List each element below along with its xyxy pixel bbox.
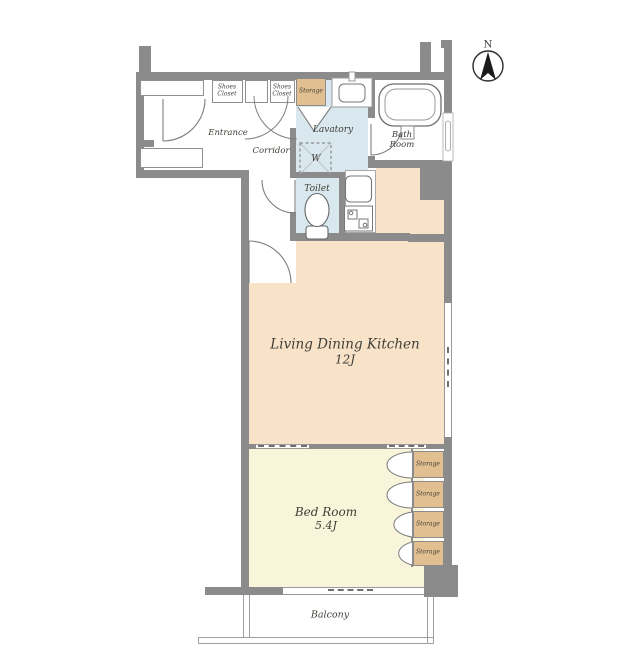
balcony-line-bottom-a xyxy=(198,637,434,638)
divider-opening-right-sash xyxy=(389,445,424,447)
corridor-label: Corridor xyxy=(252,147,289,157)
wall-bedroom-bottom xyxy=(205,587,283,595)
bedroom-size: 5.4J xyxy=(295,520,357,533)
ldk-size: 12J xyxy=(270,353,419,367)
balcony-line-right-b xyxy=(433,597,434,644)
wall-bath-divider-top xyxy=(368,80,375,118)
wall-bottomright-block xyxy=(424,565,458,597)
ldk-label: Living Dining Kitchen 12J xyxy=(270,337,419,366)
bedroom-south-window-sash xyxy=(328,589,373,591)
wall-top xyxy=(136,72,452,80)
wall-alcove-mid-stub xyxy=(136,140,154,147)
wall-alcove-bottom xyxy=(136,170,248,178)
balcony-line-left-b xyxy=(249,595,250,638)
shoes-closet-mid-box xyxy=(245,80,268,103)
bedroom-storage-label-3: Storage xyxy=(416,522,440,529)
wall-right-upper xyxy=(444,46,452,303)
shoes-closet-left-line2: Closet xyxy=(217,91,236,98)
compass-north-label: N xyxy=(484,39,493,51)
bedroom-name: Bed Room xyxy=(295,506,357,520)
pipe-shaft-block xyxy=(420,168,444,200)
washer-label: W xyxy=(311,154,320,164)
kitchen-counter xyxy=(345,170,376,233)
entry-storage-label: Storage xyxy=(299,89,323,96)
wall-west-main xyxy=(241,170,249,595)
wall-kitchen-bottom xyxy=(290,233,410,241)
divider-opening-left-sash xyxy=(258,445,307,447)
entrance-door-arc xyxy=(163,99,205,141)
shoes-closet-right-line2: Closet xyxy=(272,91,291,98)
bedroom-storage-label-4: Storage xyxy=(416,550,440,557)
wall-kitchen-stub xyxy=(408,234,452,242)
wall-bath-bottom xyxy=(368,160,452,168)
balcony-line-cap xyxy=(198,637,199,644)
floor-plan: N Entrance Corridor Lavatory Toilet Bath… xyxy=(0,0,618,662)
shoes-closet-left-label: Shoes Closet xyxy=(217,84,236,97)
bathroom-label: Bath Room xyxy=(390,131,415,151)
balcony-label: Balcony xyxy=(311,611,349,622)
toilet-door-arc xyxy=(262,180,295,213)
ldk-east-window-sash xyxy=(447,347,449,387)
shoes-closet-right-label: Shoes Closet xyxy=(272,84,291,97)
ldk-name: Living Dining Kitchen xyxy=(270,337,419,353)
entrance-label: Entrance xyxy=(208,129,248,139)
balcony-line-bottom-b xyxy=(198,643,434,644)
toilet-label: Toilet xyxy=(304,184,329,194)
bedroom-storage-label-2: Storage xyxy=(416,492,440,499)
compass-icon xyxy=(473,51,503,81)
lavatory-label: Lavatory xyxy=(313,125,353,135)
balcony-line-left-a xyxy=(243,595,244,638)
balcony-line-right-a xyxy=(427,597,428,644)
alcove-closet-upper xyxy=(140,80,204,96)
wall-right-lower xyxy=(444,437,452,565)
wall-lavatory-left xyxy=(290,128,296,178)
alcove-closet-lower xyxy=(140,148,203,168)
bedroom-storage-label-1: Storage xyxy=(416,462,440,469)
bedroom-label: Bed Room 5.4J xyxy=(295,506,357,532)
ldk-door-arc xyxy=(249,241,291,283)
bathroom-label-line2: Room xyxy=(390,141,415,151)
wall-stub-topright-inner xyxy=(420,42,431,80)
